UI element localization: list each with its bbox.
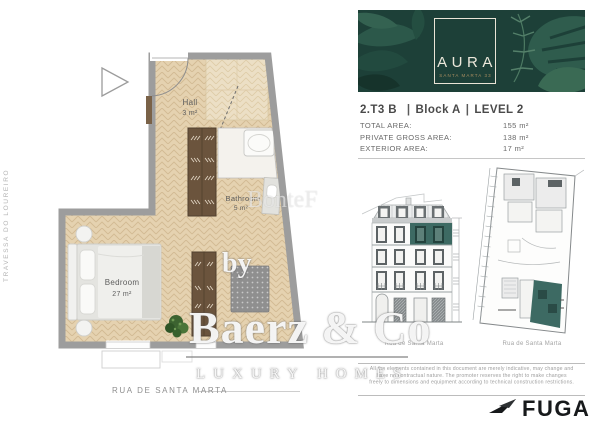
aura-logo-frame: AURA SANTA MARTA 33: [434, 18, 496, 84]
nightstand: [76, 320, 92, 336]
separator: |: [407, 104, 411, 116]
aura-logo-subtitle: SANTA MARTA 33: [439, 73, 491, 78]
unit-id: 2.T3 B: [360, 104, 397, 116]
unit-header: 2.T3 B|Block A|LEVEL 2: [360, 104, 524, 116]
room-label-bedroom: Bedroom: [105, 278, 140, 287]
unit-block: Block A: [416, 104, 461, 116]
watermark-tagline: LUXURY HOMES: [196, 366, 409, 383]
separator: |: [466, 104, 470, 116]
watermark-by: by: [222, 248, 252, 280]
brand-card: AURA SANTA MARTA 33: [358, 10, 585, 92]
bathtub: [244, 130, 274, 156]
watermark-underline: [186, 356, 408, 358]
room-area-hall: 3 m²: [182, 110, 198, 117]
room-area-bedroom: 27 m²: [112, 291, 132, 298]
area-value: 138 m²: [503, 133, 529, 142]
property-sheet: { "floor_plan": { "street_bottom": "RUA …: [0, 0, 600, 412]
table-row: EXTERIOR AREA: 17 m²: [360, 144, 585, 153]
pillow: [80, 250, 95, 280]
aura-logo: AURA: [437, 54, 497, 71]
area-value: 155 m²: [503, 121, 529, 130]
room-label-hall: Hall: [183, 98, 198, 107]
area-label: EXTERIOR AREA:: [360, 144, 503, 153]
street-label-bottom: RUA DE SANTA MARTA: [112, 386, 228, 395]
unit-level: LEVEL 2: [474, 104, 523, 116]
wardrobe-upper: [188, 128, 216, 216]
faint-watermark: BonteF: [247, 187, 318, 214]
street-label-left: TRAVESSA DO LOUREIRO: [3, 122, 10, 282]
architect-logo: FUGA: [489, 396, 590, 422]
watermark-brand: Baerz & Co: [189, 301, 431, 354]
siteplan-caption: Rua de Santa Marta: [482, 341, 582, 347]
area-table: TOTAL AREA: 155 m² PRIVATE GROSS AREA: 1…: [360, 121, 585, 156]
table-row: PRIVATE GROSS AREA: 138 m²: [360, 133, 585, 142]
highlighted-unit: [530, 280, 562, 328]
table-row: TOTAL AREA: 155 m²: [360, 121, 585, 130]
fuga-arrow-icon: [489, 396, 517, 414]
area-label: PRIVATE GROSS AREA:: [360, 133, 503, 142]
wall-niche: [146, 96, 152, 124]
balcony-outline: [102, 351, 192, 368]
divider: [358, 158, 585, 159]
side-annex: [452, 218, 462, 322]
pillow: [80, 284, 95, 314]
area-value: 17 m²: [503, 144, 524, 153]
hall-void-area: [206, 58, 268, 120]
site-plan: [468, 160, 584, 338]
area-label: TOTAL AREA:: [360, 121, 503, 130]
entrance-marker: [102, 68, 128, 96]
door-opening: [150, 50, 188, 61]
fuga-wordmark: FUGA: [522, 396, 590, 422]
nightstand: [76, 226, 92, 242]
